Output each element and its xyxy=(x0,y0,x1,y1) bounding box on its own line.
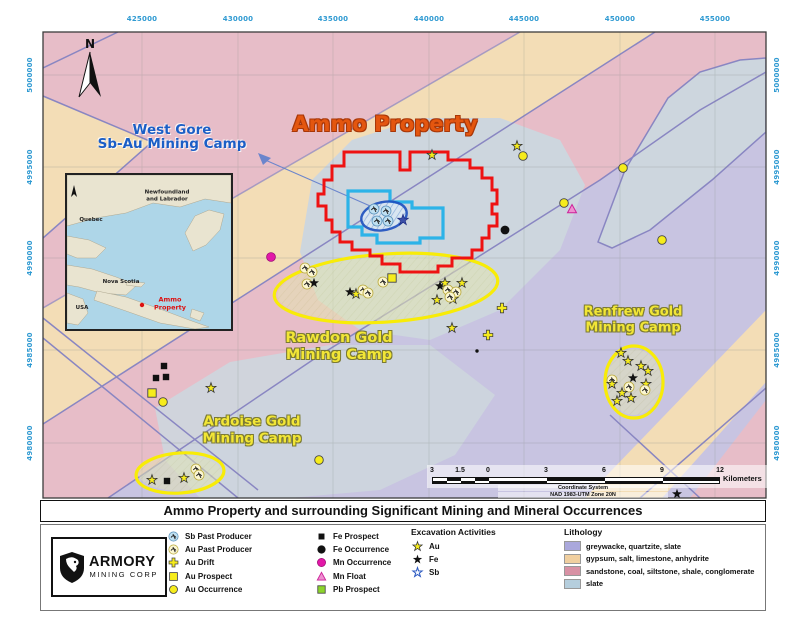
rawdon-camp-label: Rawdon Gold Mining Camp xyxy=(285,330,392,364)
marker-fe_pros xyxy=(164,478,170,484)
legend-item-label: Au Prospect xyxy=(185,572,232,581)
star_sb_o-icon xyxy=(411,566,424,579)
au_pp-icon xyxy=(167,543,180,556)
west-gore-line2: Sb-Au Mining Camp xyxy=(98,137,247,151)
grid-label-northing: 4995000 xyxy=(26,141,34,193)
inset-label-nl: Newfoundland and Labrador xyxy=(145,190,190,203)
legend-item-sb_pp: Sb Past Producer xyxy=(167,530,252,543)
legend-item-label: Sb Past Producer xyxy=(185,532,252,541)
scale-tick: 0 xyxy=(476,467,500,474)
company-logo: ARMORY MINING CORP xyxy=(51,537,167,597)
sb_pp-icon xyxy=(167,530,180,543)
grid-label-northing: 4990000 xyxy=(773,232,781,284)
legend-item-label: Au xyxy=(429,542,440,551)
marker-au_pp xyxy=(307,267,317,277)
legend-item-au_drift: Au Drift xyxy=(167,556,252,569)
grid-label-easting: 430000 xyxy=(214,15,262,23)
legend-panel: ARMORY MINING CORP Sb Past ProducerAu Pa… xyxy=(40,524,766,611)
legend-item-label: Sb xyxy=(429,568,439,577)
legend-item-label: Fe xyxy=(429,555,438,564)
au_occ-icon xyxy=(167,583,180,596)
scale-tick: 12 xyxy=(708,467,732,474)
legend-item-label: Fe Prospect xyxy=(333,532,379,541)
marker-au_occ xyxy=(658,236,667,245)
grid-label-northing: 4980000 xyxy=(773,417,781,469)
lithology-header: Lithology xyxy=(564,527,754,537)
marker-au_pp xyxy=(445,292,455,302)
star_fe-icon xyxy=(411,553,424,566)
scale-unit-label: Kilometers xyxy=(723,474,762,483)
grid-label-northing: 5000000 xyxy=(26,49,34,101)
north-label: N xyxy=(85,37,95,51)
lithology-swatch xyxy=(564,554,581,564)
grid-label-northing: 4985000 xyxy=(773,324,781,376)
west-gore-line1: West Gore xyxy=(98,123,247,137)
grid-label-northing: 5000000 xyxy=(773,49,781,101)
scale-tick: 6 xyxy=(592,467,616,474)
au_drift-icon xyxy=(167,556,180,569)
marker-au_occ xyxy=(315,456,324,465)
ardoise-camp-label: Ardoise Gold Mining Camp xyxy=(202,414,301,447)
west-gore-label: West Gore Sb-Au Mining Camp xyxy=(98,123,247,151)
legend-item-au_occ: Au Occurrence xyxy=(167,583,252,596)
marker-dot xyxy=(475,349,478,352)
grid-label-northing: 4980000 xyxy=(26,417,34,469)
mining-map-document: 425000 430000 435000 440000 445000 45000… xyxy=(0,0,800,619)
marker-sb_pp xyxy=(372,216,382,226)
marker-au_pp xyxy=(302,279,312,289)
lithology-label: slate xyxy=(586,579,603,588)
marker-au_occ xyxy=(560,199,569,208)
legend-item-au_pp: Au Past Producer xyxy=(167,543,252,556)
legend-item-fe_pros: Fe Prospect xyxy=(315,530,391,543)
legend-column-au-sb: Sb Past ProducerAu Past ProducerAu Drift… xyxy=(167,530,252,596)
excavation-header: Excavation Activities xyxy=(411,527,496,537)
marker-au_pros xyxy=(148,389,156,397)
inset-label-quebec: Quebec xyxy=(79,217,102,224)
armory-shield-icon xyxy=(58,551,86,585)
legend-item-label: Au Occurrence xyxy=(185,585,242,594)
inset-label-nova-scotia: Nova Scotia xyxy=(103,279,140,286)
legend-item-star_fe: Fe xyxy=(411,553,496,566)
logo-name: ARMORY xyxy=(89,554,155,570)
marker-au_occ xyxy=(619,164,628,173)
grid-label-northing: 4985000 xyxy=(26,324,34,376)
marker-mn_occ xyxy=(267,253,276,262)
scale-tick: 9 xyxy=(650,467,674,474)
legend-item-mn_occ: Mn Occurrence xyxy=(315,556,391,569)
legend-column-lithology: Lithology greywacke, quartzite, slategyp… xyxy=(564,527,754,590)
lithology-item: gypsum, salt, limestone, anhydrite xyxy=(564,553,754,566)
marker-au_pp xyxy=(378,277,388,287)
legend-item-label: Au Drift xyxy=(185,558,214,567)
renfrew-camp-label: Renfrew Gold Mining Camp xyxy=(584,305,683,336)
marker-sb_pp xyxy=(369,204,379,214)
marker-au_occ xyxy=(519,152,528,161)
location-inset-map: Newfoundland and Labrador Quebec Nova Sc… xyxy=(65,173,233,331)
star_au-icon xyxy=(411,540,424,553)
lithology-label: sandstone, coal, siltstone, shale, congl… xyxy=(586,567,754,576)
legend-item-au_pros: Au Prospect xyxy=(167,570,252,583)
map-title: Ammo Property and surrounding Significan… xyxy=(40,500,766,522)
legend-item-star_sb_o: Sb xyxy=(411,566,496,579)
marker-au_pp xyxy=(624,382,634,392)
pb_pros-icon xyxy=(315,583,328,596)
lithology-label: greywacke, quartzite, slate xyxy=(586,542,681,551)
marker-fe_occ xyxy=(501,226,510,235)
marker-fe_pros xyxy=(153,375,159,381)
grid-label-easting: 455000 xyxy=(691,15,739,23)
scale-tick: 1.5 xyxy=(448,467,472,474)
fe_occ-icon xyxy=(315,543,328,556)
scale-bar-rule xyxy=(432,477,720,484)
grid-label-easting: 450000 xyxy=(596,15,644,23)
crs-line1: Coordinate System xyxy=(498,485,668,491)
legend-column-fe-mn-pb: Fe ProspectFe OccurrenceMn OccurrenceMn … xyxy=(315,530,391,596)
mn_float-icon xyxy=(315,570,328,583)
marker-au_pp xyxy=(363,288,373,298)
legend-item-star_au: Au xyxy=(411,540,496,553)
grid-label-easting: 425000 xyxy=(118,15,166,23)
lithology-item: slate xyxy=(564,578,754,591)
legend-item-label: Fe Occurrence xyxy=(333,545,389,554)
legend-column-excavation: Excavation Activities AuFeSb xyxy=(411,527,496,580)
marker-fe_pros xyxy=(163,374,169,380)
grid-label-northing: 4995000 xyxy=(773,141,781,193)
scale-tick: 3 xyxy=(534,467,558,474)
inset-ammo-dot xyxy=(140,303,144,307)
legend-item-fe_occ: Fe Occurrence xyxy=(315,543,391,556)
grid-label-easting: 435000 xyxy=(309,15,357,23)
fe_pros-icon xyxy=(315,530,328,543)
legend-item-pb_pros: Pb Prospect xyxy=(315,583,391,596)
scale-bar: 3 1.5 0 3 6 9 12 Kilometers Coordinate S… xyxy=(427,465,777,499)
inset-label-usa: USA xyxy=(76,305,89,312)
legend-item-label: Pb Prospect xyxy=(333,585,380,594)
marker-sb_pp xyxy=(381,206,391,216)
lithology-swatch xyxy=(564,566,581,576)
marker-au_pp xyxy=(640,385,650,395)
mn_occ-icon xyxy=(315,556,328,569)
lithology-swatch xyxy=(564,579,581,589)
inset-label-ammo-property: Ammo Property xyxy=(154,297,186,312)
grid-label-northing: 4990000 xyxy=(26,232,34,284)
legend-item-label: Mn Occurrence xyxy=(333,558,391,567)
lithology-item: sandstone, coal, siltstone, shale, congl… xyxy=(564,565,754,578)
marker-au_occ xyxy=(159,398,168,407)
lithology-label: gypsum, salt, limestone, anhydrite xyxy=(586,554,709,563)
marker-sb_pp xyxy=(383,216,393,226)
scale-tick: 3 xyxy=(420,467,444,474)
marker-au_pros xyxy=(388,274,396,282)
marker-au_pp xyxy=(194,470,204,480)
marker-fe_pros xyxy=(161,363,167,369)
au_pros-icon xyxy=(167,570,180,583)
lithology-item: greywacke, quartzite, slate xyxy=(564,540,754,553)
crs-line2: NAD 1983-UTM Zone 20N xyxy=(498,492,668,498)
lithology-swatch xyxy=(564,541,581,551)
legend-item-label: Au Past Producer xyxy=(185,545,252,554)
legend-item-mn_float: Mn Float xyxy=(315,570,391,583)
logo-subtitle: MINING CORP xyxy=(90,570,158,579)
legend-item-label: Mn Float xyxy=(333,572,366,581)
grid-label-easting: 445000 xyxy=(500,15,548,23)
ammo-property-label: Ammo Property xyxy=(292,112,477,136)
grid-label-easting: 440000 xyxy=(405,15,453,23)
